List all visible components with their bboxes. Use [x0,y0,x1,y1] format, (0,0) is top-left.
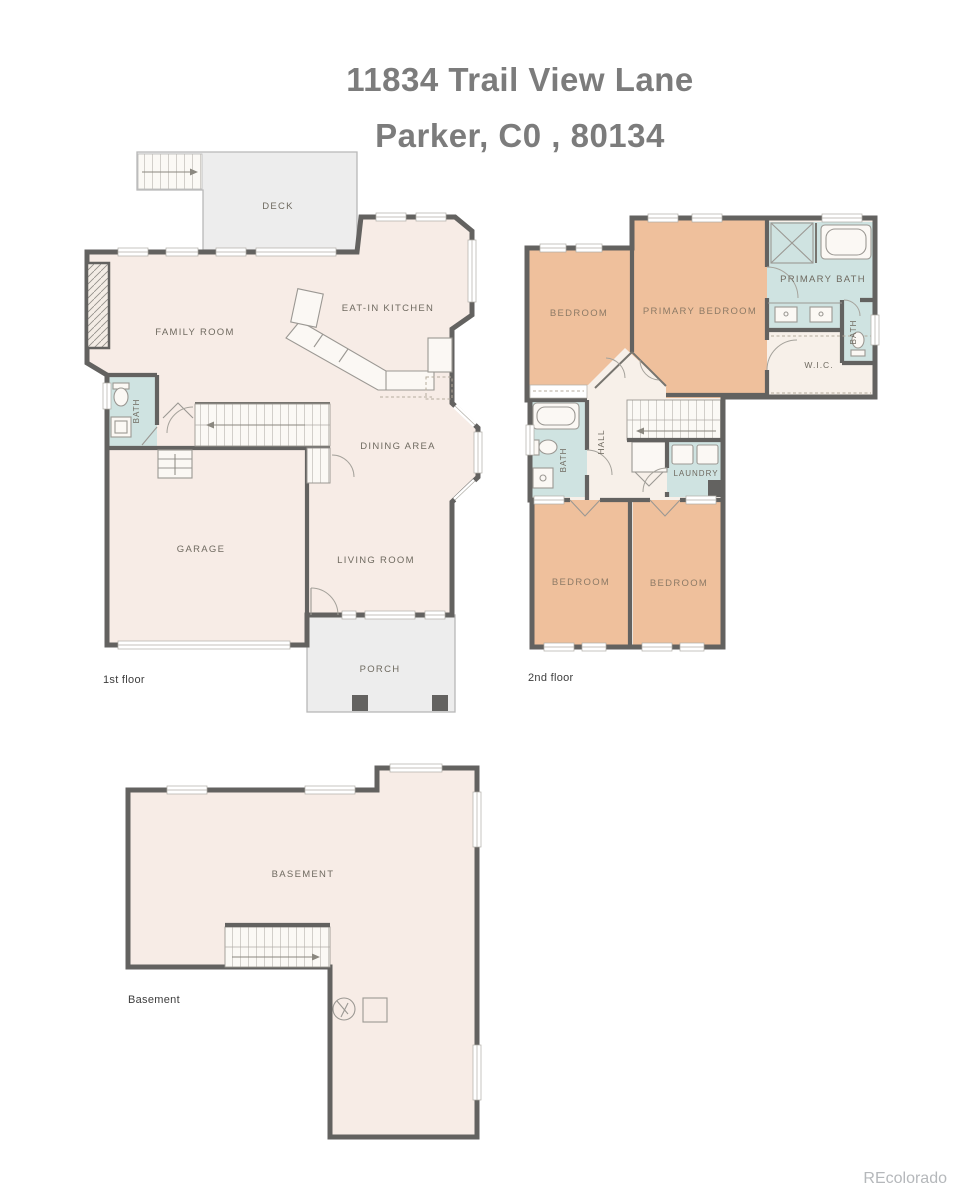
basement-caption: Basement [128,994,180,1006]
porch-post [432,695,448,711]
deck-area [137,152,357,250]
room-label-deck: DECK [262,201,294,212]
bedroom-br [633,500,725,647]
hall-closet [632,442,667,472]
chase [708,480,723,497]
first-floor-plan: DECK FAMILY ROOM EAT-IN KITCHEN DINING A… [80,145,485,720]
room-label-dining: DINING AREA [360,441,436,452]
tub-icon [821,225,871,259]
bedroom-bl [532,500,630,647]
room-label-porch: PORCH [360,664,401,675]
second-floor-stairs [627,400,723,440]
pantry-closet [307,448,330,483]
room-label-bedroom-tl: BEDROOM [550,308,608,319]
room-label-wic: W.I.C. [804,360,833,370]
second-floor-plan: BEDROOM PRIMARY BEDROOM PRIMARY BATH W.I… [520,210,885,660]
room-label-family-room: FAMILY ROOM [155,327,234,338]
tub-icon [533,403,579,429]
second-floor-caption: 2nd floor [528,672,574,684]
room-label-primary-bedroom: PRIMARY BEDROOM [643,306,757,317]
fireplace [87,263,109,348]
room-label-laundry: LAUNDRY [673,469,718,478]
first-floor-stairs [195,404,330,446]
room-label-kitchen: EAT-IN KITCHEN [342,303,434,314]
toilet-icon [533,440,557,455]
first-floor-caption: 1st floor [103,674,145,686]
toilet-icon [113,383,129,406]
sink-icon [533,468,553,488]
entry-steps [158,450,192,478]
floorplan-page: 11834 Trail View Lane Parker, C0 , 80134 [0,0,953,1200]
sink-icon [111,417,131,437]
basement-stairs [225,925,330,967]
address-line: 11834 Trail View Lane [346,52,693,108]
room-label-bath-right: BATH [849,320,858,345]
watermark: REcolorado [863,1170,947,1188]
room-label-bath1: BATH [132,399,141,424]
room-label-bath-left: BATH [559,448,568,473]
porch-post [352,695,368,711]
room-label-basement: BASEMENT [272,869,335,880]
room-label-bedroom-bl: BEDROOM [552,577,610,588]
room-label-primary-bath: PRIMARY BATH [780,274,866,285]
room-label-living: LIVING ROOM [337,555,415,566]
room-label-bedroom-br: BEDROOM [650,578,708,589]
room-label-garage: GARAGE [177,544,225,555]
basement-plan: BASEMENT [120,760,485,1150]
room-label-hall: HALL [596,429,606,454]
